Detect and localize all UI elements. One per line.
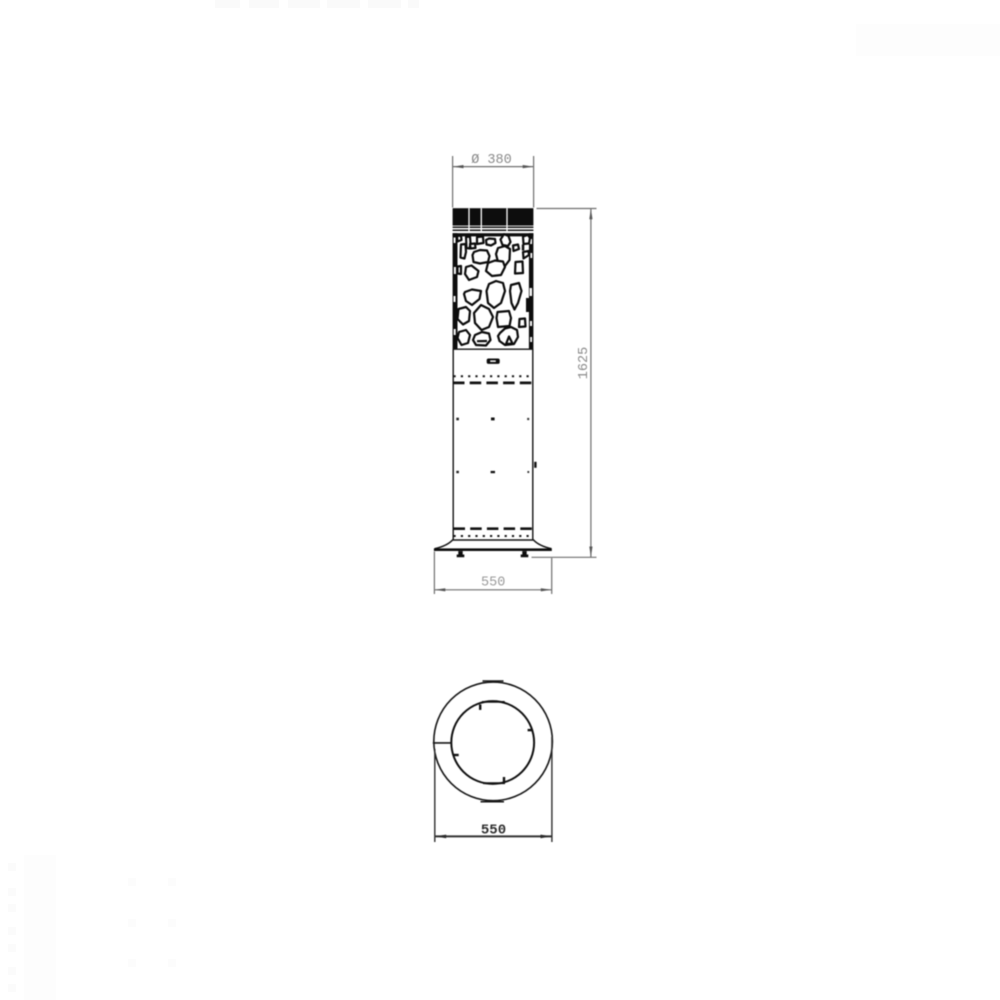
svg-text:1625: 1625 bbox=[577, 347, 592, 379]
svg-text:550: 550 bbox=[481, 575, 505, 590]
svg-text:Ø 380: Ø 380 bbox=[471, 153, 512, 168]
svg-text:550: 550 bbox=[481, 823, 506, 839]
